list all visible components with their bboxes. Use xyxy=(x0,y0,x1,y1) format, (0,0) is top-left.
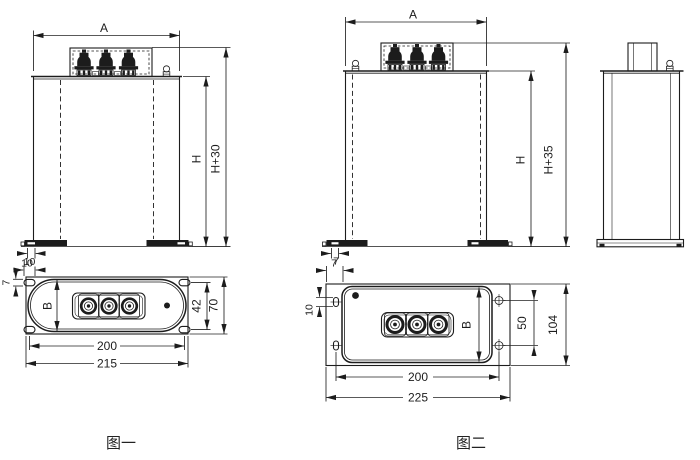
fig1-bushing-3 xyxy=(119,50,138,76)
fig1-terminal-3 xyxy=(120,294,140,318)
fig2-side-base xyxy=(597,240,684,247)
fig2-terminal-3 xyxy=(428,313,449,336)
fig2-terminal-block xyxy=(382,313,454,338)
dim-label-fig2-h35: H+35 xyxy=(542,145,556,174)
dim-label-fig2-104: 104 xyxy=(546,315,560,335)
fig1-grounding-stud xyxy=(163,66,170,77)
fig2-terminal-1 xyxy=(385,313,406,336)
dim-label-fig1-70: 70 xyxy=(207,299,221,313)
fig2-bushing-2 xyxy=(407,44,426,70)
dim-label-fig1-215: 215 xyxy=(97,357,117,371)
fig1-bushing-1 xyxy=(74,50,93,76)
fig2-terminal-2 xyxy=(407,313,428,336)
fig2-capacitor-body xyxy=(343,71,489,240)
fig1-dim-depth-B: B xyxy=(41,280,58,331)
dim-label-fig1-42: 42 xyxy=(190,299,204,313)
fig1-terminal-2 xyxy=(99,294,119,318)
figure2-front-view: A H H+35 7 xyxy=(322,8,570,270)
dim-label-fig2-ear7: 7 xyxy=(333,256,339,268)
fig2-bushing-1 xyxy=(385,44,404,70)
dim-label-fig2-h: H xyxy=(514,156,528,165)
technical-drawing-page: A H H+30 10 xyxy=(0,0,700,460)
fig2-drain-hole xyxy=(352,292,359,299)
dim-label-fig2-200: 200 xyxy=(408,370,428,384)
fig1-terminal-block xyxy=(73,293,146,319)
fig2-side-terminal-box xyxy=(628,43,657,71)
fig1-bushing-2 xyxy=(96,50,115,76)
fig2-side-grounding-stud xyxy=(667,60,674,71)
fig1-terminal-1 xyxy=(79,294,99,318)
fig2-dim-height-H: H xyxy=(489,71,535,247)
dim-label-fig1-200: 200 xyxy=(97,339,117,353)
dim-label-fig2-50: 50 xyxy=(515,316,529,330)
figure1-bottom-view: B 42 70 200 215 xyxy=(1,256,228,371)
fig1-mounting-feet xyxy=(21,240,192,247)
dim-label-fig2-slot10: 10 xyxy=(304,304,316,316)
fig2-mounting-feet xyxy=(322,240,512,247)
figure1-caption: 图一 xyxy=(106,435,136,452)
dim-label-fig1-h30: H+30 xyxy=(209,144,223,173)
dim-label-fig2-a: A xyxy=(409,8,417,22)
fig2-dim-slot-length: 10 xyxy=(304,289,334,316)
fig2-bushing-3 xyxy=(429,44,448,70)
fig1-dim-hole-pitch: 200 xyxy=(30,336,185,353)
fig1-terminal-box xyxy=(70,48,152,77)
fig1-dim-height-H: H xyxy=(183,77,210,247)
fig1-dim-overall-height: H+30 xyxy=(152,48,231,247)
dim-label-fig1-a: A xyxy=(100,21,108,35)
fig2-dim-hole-pitch: 200 xyxy=(336,352,499,384)
figure2-side-view xyxy=(597,43,684,247)
fig2-dim-hole-rows: 50 xyxy=(504,290,539,356)
dim-label-fig2-225: 225 xyxy=(408,391,428,405)
fig1-drain-hole xyxy=(164,303,170,309)
figure2-bottom-view: B 50 104 7 xyxy=(304,256,571,405)
figure1-front-view: A H H+30 10 xyxy=(19,21,231,270)
fig2-grounding-stud xyxy=(352,60,359,71)
dim-label-fig1-h: H xyxy=(190,155,204,164)
dim-label-fig1-slot10: 10 xyxy=(24,256,36,268)
fig2-dim-depth-B: B xyxy=(460,288,480,362)
fig1-capacitor-body xyxy=(31,77,182,241)
dim-label-fig1-b: B xyxy=(41,302,55,310)
dim-label-fig1-slot7: 7 xyxy=(1,280,13,286)
figure2-caption: 图二 xyxy=(456,435,486,452)
fig2-terminal-box xyxy=(381,43,453,71)
capacitor-dimension-drawing: A H H+30 10 xyxy=(0,0,700,460)
dim-label-fig2-b: B xyxy=(460,321,474,329)
